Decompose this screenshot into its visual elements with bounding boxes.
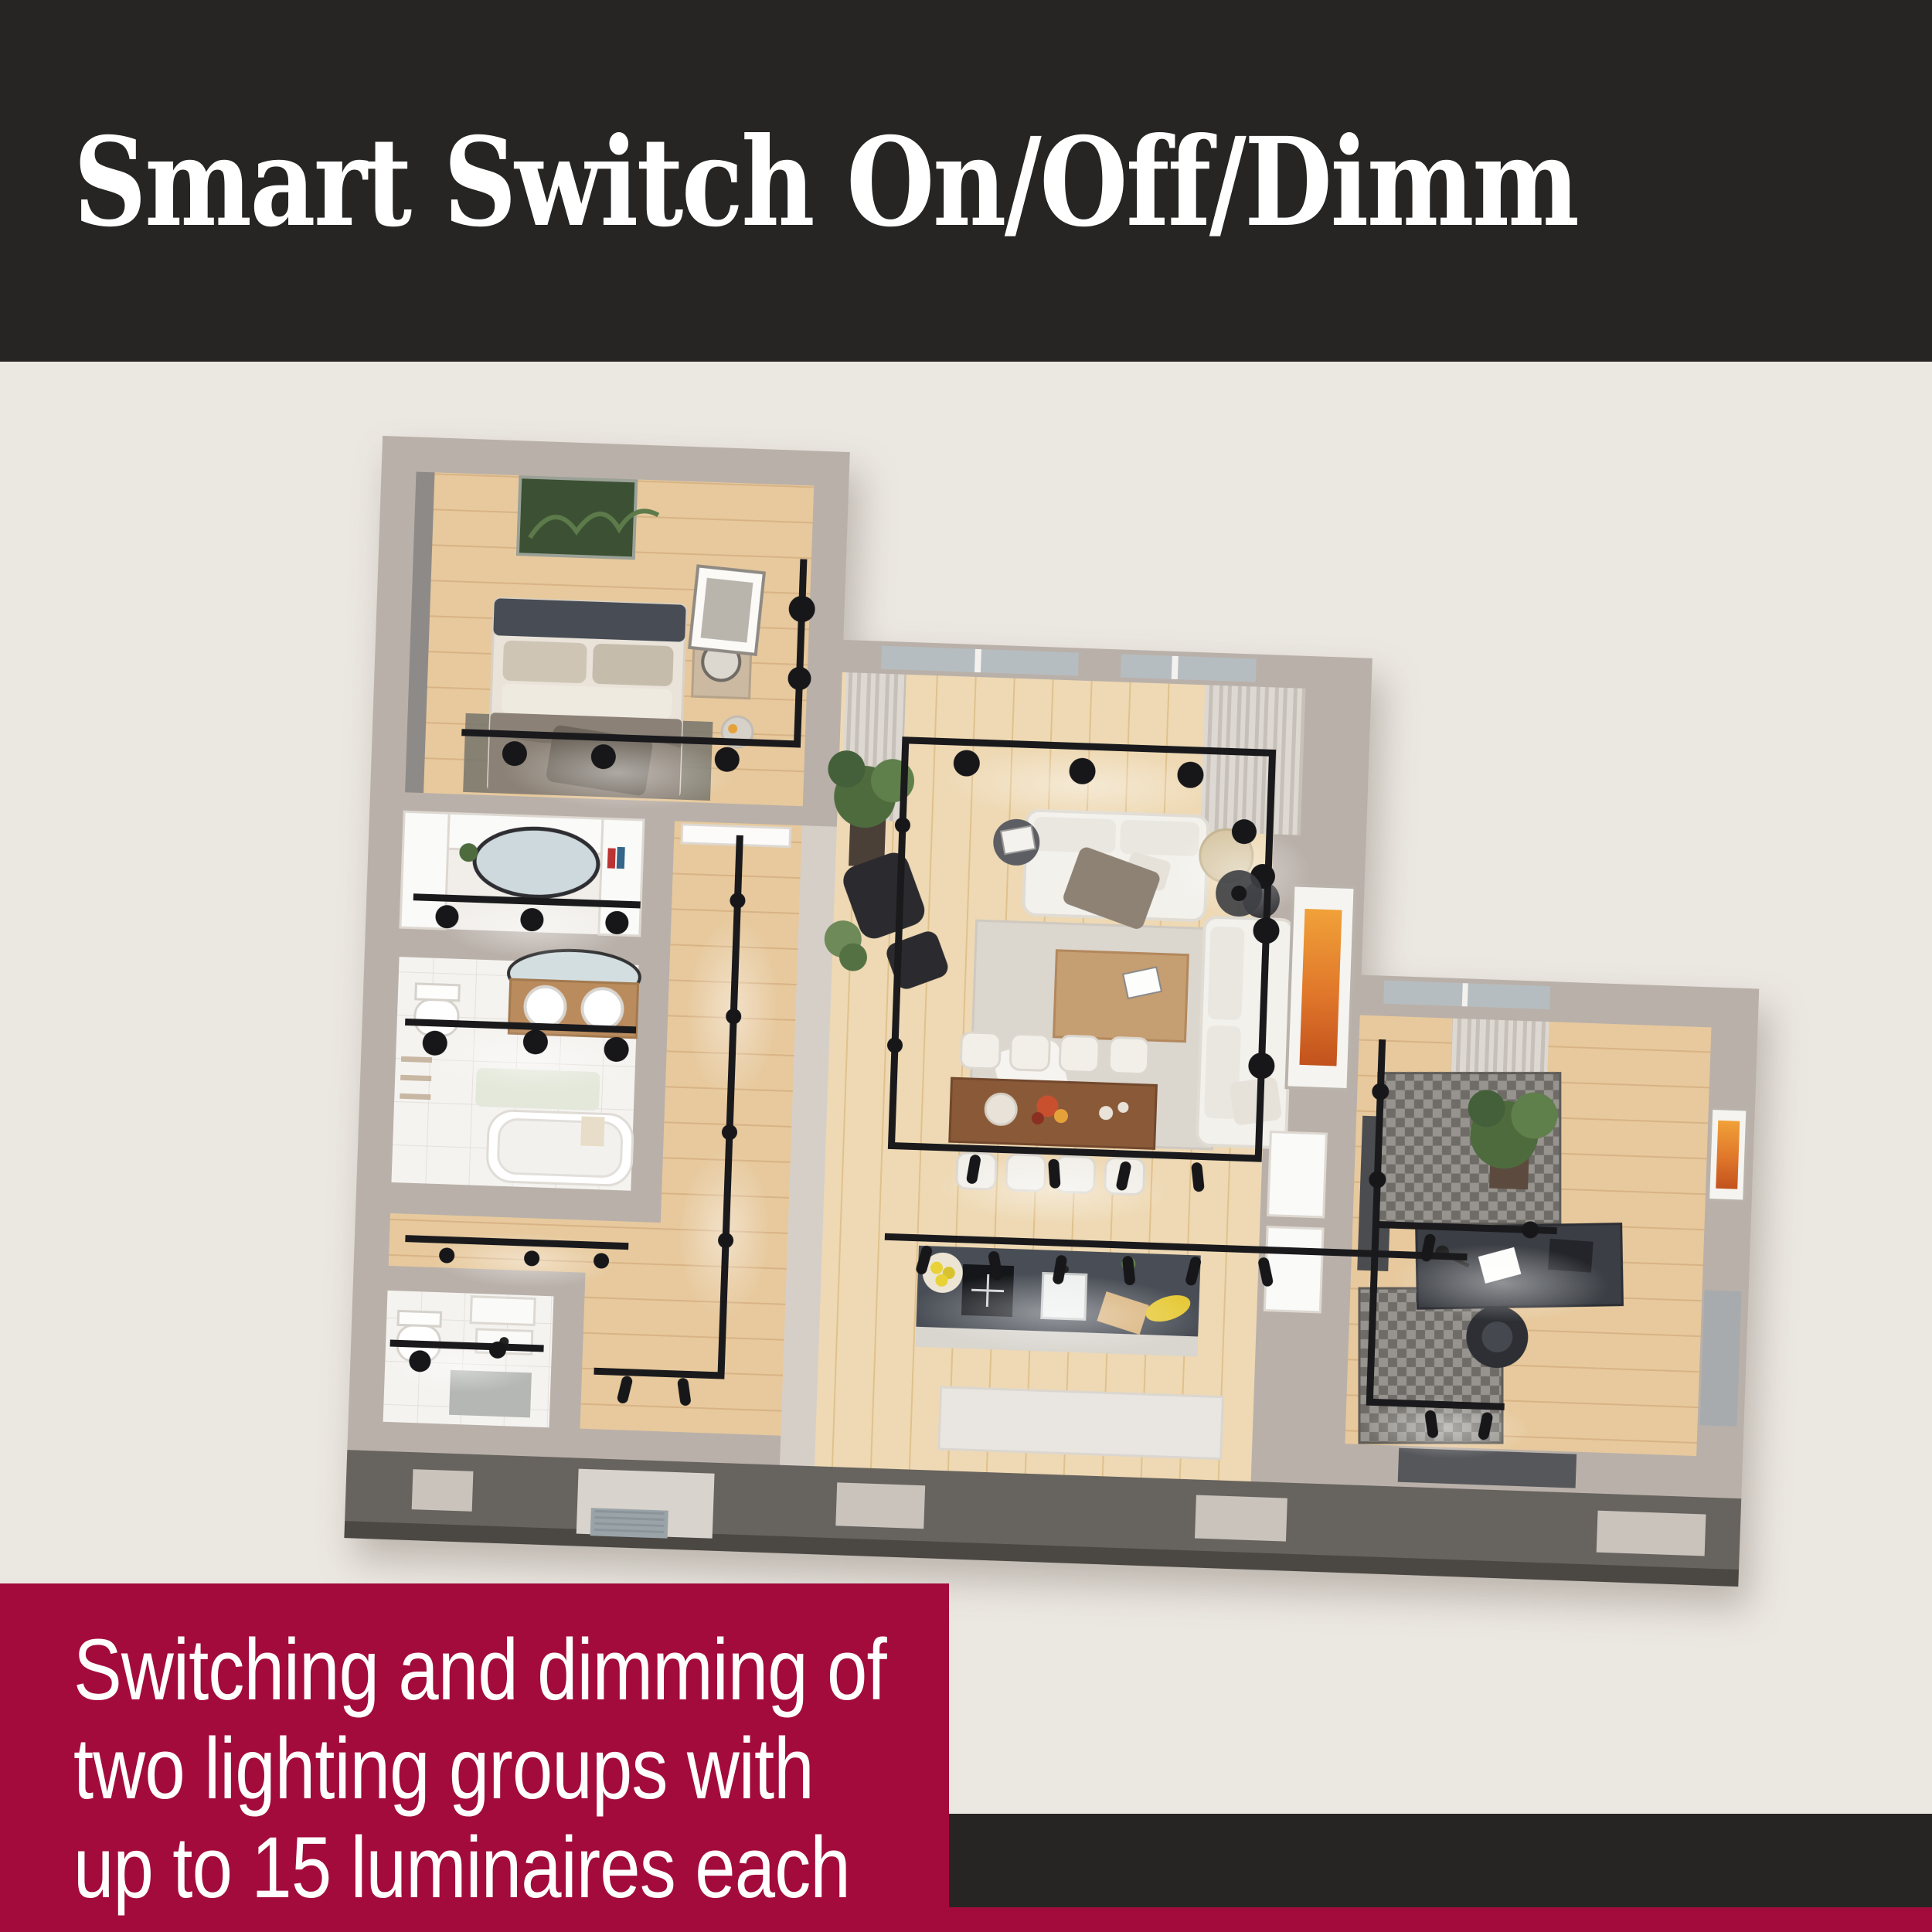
caption-line-1: Switching and dimming of — [73, 1621, 809, 1719]
bathtub — [487, 1110, 634, 1185]
apartment-plan — [344, 436, 1777, 1587]
bath-towel — [580, 1116, 604, 1146]
caption-line-2: two lighting groups with — [73, 1719, 809, 1818]
bedroom-plant-artwork — [518, 477, 636, 558]
footer-band — [949, 1814, 1932, 1907]
curtain-right — [1200, 685, 1306, 835]
wall-frame-2 — [1264, 1227, 1323, 1312]
toilet — [414, 984, 459, 1036]
hall-door — [682, 825, 791, 847]
product-image: Smart Switch On/Off/Dimm — [0, 0, 1932, 1932]
front-door — [577, 1469, 715, 1540]
footer-red-strip — [949, 1907, 1932, 1932]
kitchen-counter — [939, 1387, 1223, 1459]
front-window-2 — [835, 1482, 925, 1529]
caption-box: Switching and dimming of two lighting gr… — [0, 1583, 949, 1932]
front-window-4 — [1597, 1511, 1706, 1556]
sofa-right — [1197, 917, 1294, 1148]
wall-frame-1 — [1268, 1132, 1327, 1217]
caption-line-3: up to 15 luminaires each — [73, 1818, 809, 1917]
office-glass-door — [1700, 1290, 1742, 1427]
office-artwork — [1709, 1108, 1747, 1201]
front-window-1 — [412, 1469, 474, 1512]
coffee-table — [1054, 951, 1189, 1042]
front-window-3 — [1195, 1495, 1287, 1542]
living-artwork — [1286, 885, 1355, 1090]
living-window-2 — [1121, 654, 1257, 682]
